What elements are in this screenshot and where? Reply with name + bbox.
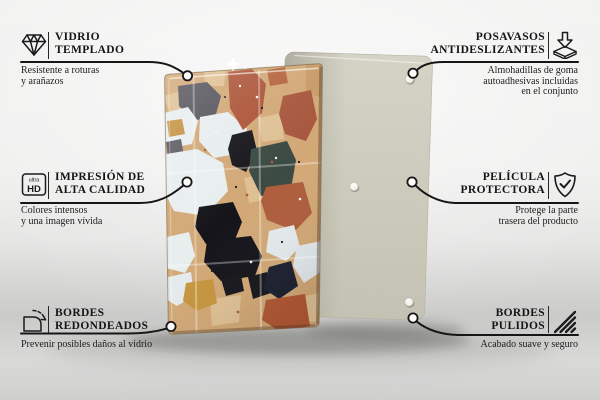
hatched-edge-icon: [552, 307, 578, 335]
callout-protective-film: PELÍCULAPROTECTORA Protege la parte tras…: [418, 168, 578, 240]
callout-description: Prevenir posibles daños al vidrio: [21, 340, 152, 351]
svg-text:ultra: ultra: [29, 178, 41, 184]
callout-divider: [548, 306, 549, 333]
callout-divider: [548, 32, 549, 59]
callout-title: IMPRESIÓN DEALTA CALIDAD: [55, 171, 145, 197]
callout-title: VIDRIOTEMPLADO: [55, 31, 124, 57]
svg-text:HD: HD: [27, 184, 41, 195]
callout-divider: [48, 32, 49, 59]
callout-tempered-glass: VIDRIOTEMPLADO Resistente a roturasy ara…: [0, 28, 160, 100]
rounded-corner-icon: [21, 307, 47, 335]
callout-title: POSAVASOSANTIDESLIZANTES: [430, 31, 545, 57]
callout-antislip-coasters: POSAVASOSANTIDESLIZANTES Almohadillas de…: [418, 28, 578, 100]
shield-check-icon: [552, 171, 578, 199]
callout-divider: [48, 306, 49, 333]
callout-description: Resistente a roturasy arañazos: [21, 66, 99, 87]
ultra-hd-icon: ultra HD: [21, 171, 47, 199]
callout-description: Acabado suave y seguro: [481, 340, 578, 351]
callout-polished-edges: BORDESPULIDOS Acabado suave y seguro: [418, 302, 578, 374]
callout-title: BORDESREDONDEADOS: [55, 307, 148, 333]
callout-divider: [548, 172, 549, 199]
callout-title: PELÍCULAPROTECTORA: [461, 171, 545, 197]
callout-description: Protege la parte trasera del producto: [499, 206, 578, 227]
diamond-icon: [21, 31, 47, 59]
coaster-pads-icon: [552, 31, 578, 59]
callout-description: Colores intensosy una imagen vívida: [21, 206, 102, 227]
callout-print-quality: ultra HD IMPRESIÓN DEALTA CALIDAD Colore…: [0, 168, 160, 240]
callout-rounded-edges: BORDESREDONDEADOS Prevenir posibles daño…: [0, 302, 160, 374]
callout-description: Almohadillas de goma autoadhesivas inclu…: [483, 66, 578, 98]
callout-title: BORDESPULIDOS: [491, 307, 545, 333]
callout-divider: [48, 172, 49, 199]
front-glass-panel: [155, 55, 335, 345]
